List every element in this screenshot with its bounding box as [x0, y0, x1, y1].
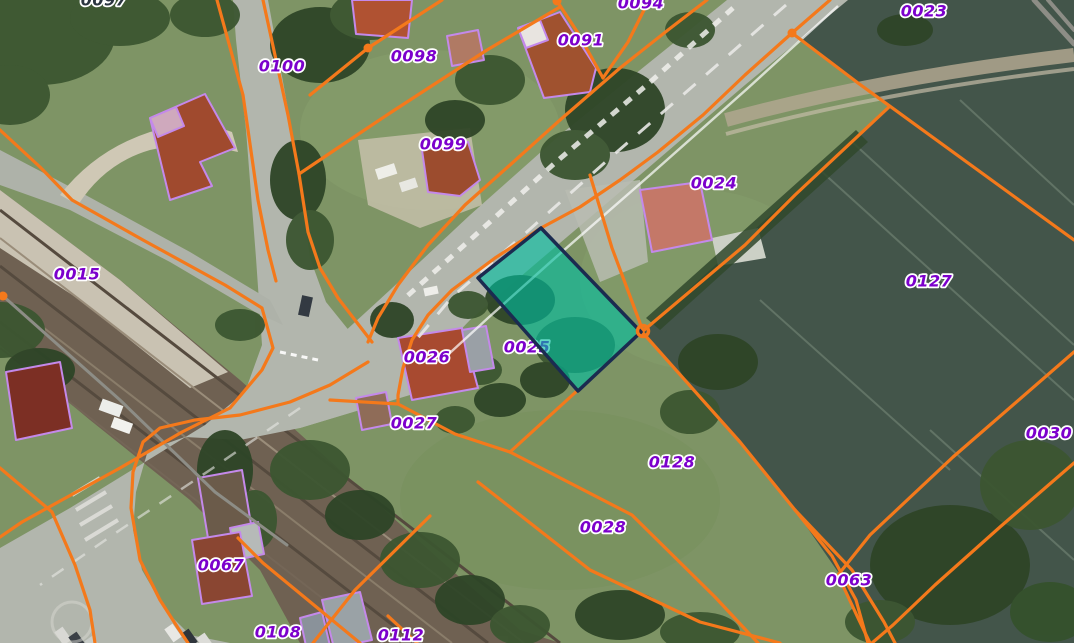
house-top-center: [352, 0, 412, 38]
map-viewport[interactable]: 0025 00970094010000980091002300990024001…: [0, 0, 1074, 643]
parcel-label-0015: 0015: [54, 265, 101, 284]
parcel-label-0112: 0112: [378, 626, 425, 643]
vertex-dot-node: [364, 44, 373, 53]
parcel-label-0094: 0094: [618, 0, 665, 13]
parcel-label-0026: 0026: [404, 348, 451, 367]
shed-0027: [356, 392, 392, 430]
garage-0098: [447, 30, 484, 66]
house-0024: [640, 182, 712, 252]
parcel-label-0128: 0128: [649, 453, 696, 472]
parcel-label-0023: 0023: [901, 2, 948, 21]
parcel-label-0108: 0108: [255, 623, 302, 642]
vertex-dot-node: [788, 29, 797, 38]
parcel-label-0063: 0063: [826, 571, 873, 590]
parcel-label-0027: 0027: [391, 414, 438, 433]
parcel-label-0097: 0097: [81, 0, 128, 10]
parcel-label-0100: 0100: [259, 57, 306, 76]
parcel-label-0024: 0024: [691, 174, 738, 193]
parcel-label-0091: 0091: [558, 31, 605, 50]
parcel-label-0067: 0067: [198, 556, 245, 575]
parcel-label-0098: 0098: [391, 47, 438, 66]
parcel-label-0099: 0099: [420, 135, 467, 154]
parcel-label-0030: 0030: [1026, 424, 1073, 443]
house-bottom-left: [6, 362, 72, 440]
parcel-label-0028: 0028: [580, 518, 627, 537]
cadastral-map-canvas[interactable]: 0025 00970094010000980091002300990024001…: [0, 0, 1074, 643]
parcel-label-0127: 0127: [906, 272, 953, 291]
